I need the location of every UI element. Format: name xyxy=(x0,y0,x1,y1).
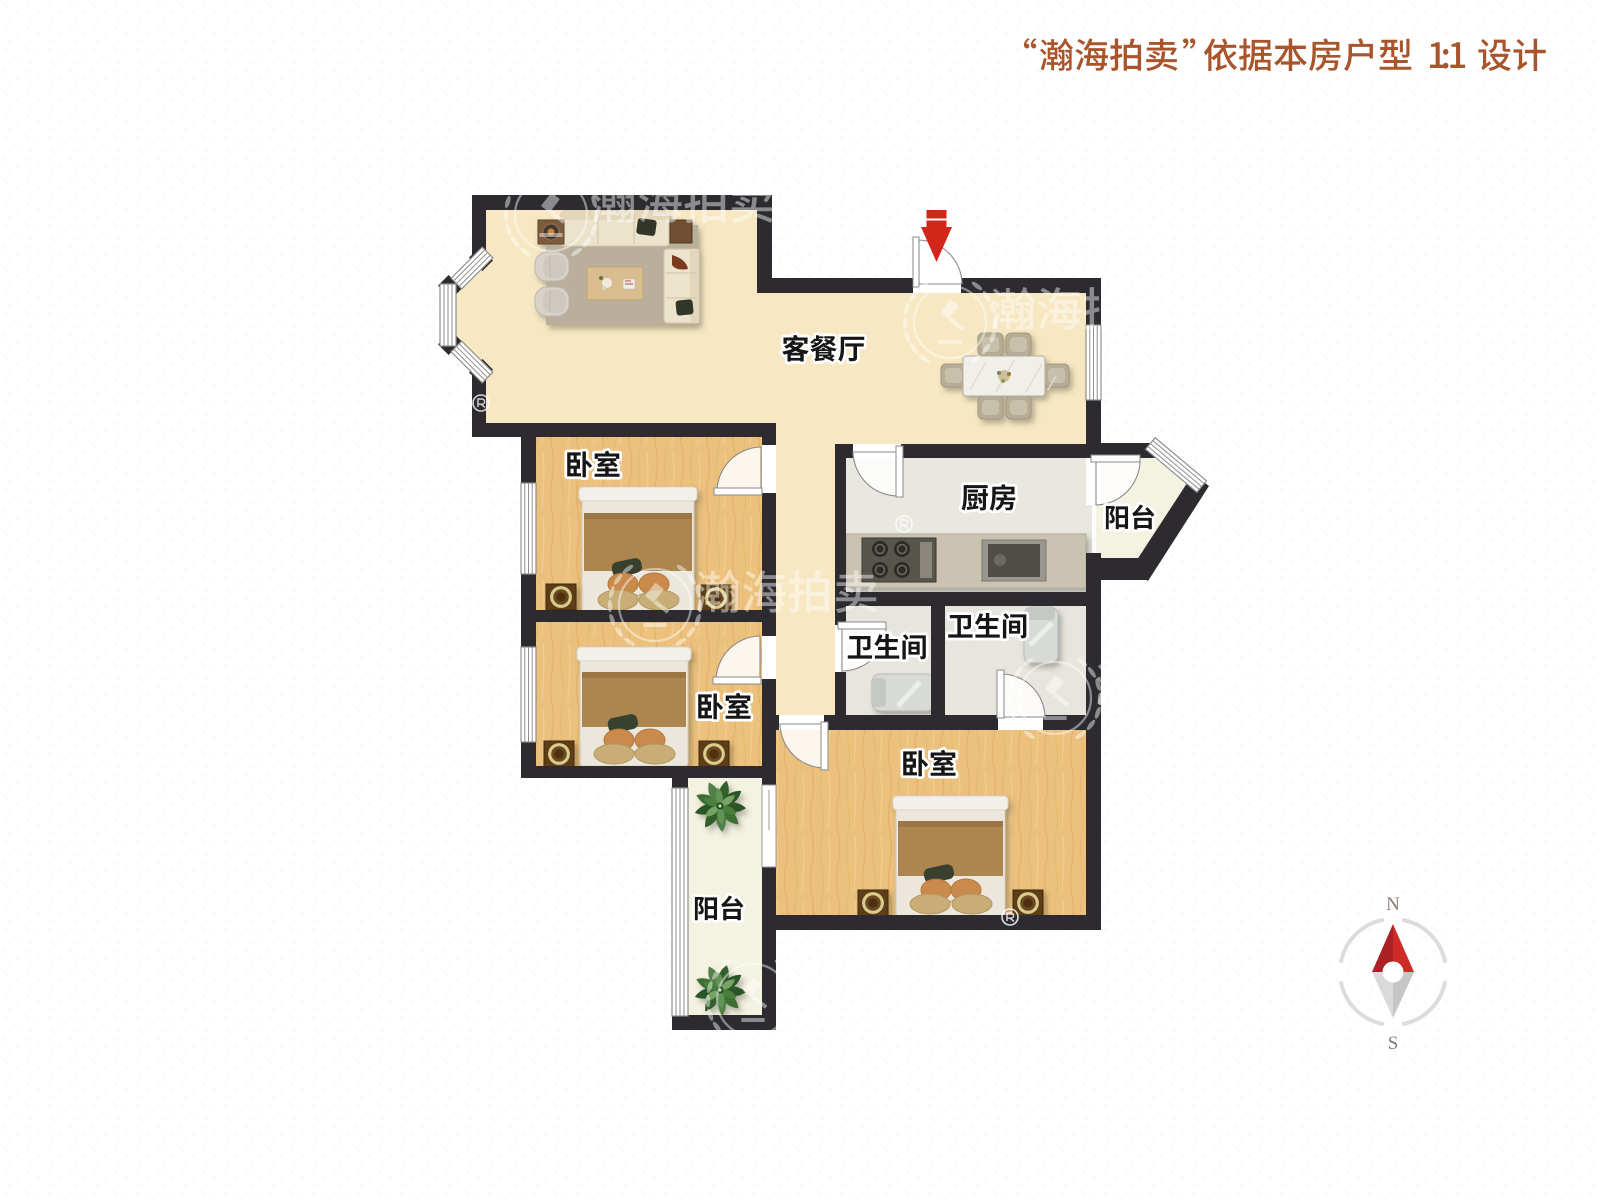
svg-text:N: N xyxy=(1386,894,1400,915)
svg-text:S: S xyxy=(1388,1033,1399,1054)
